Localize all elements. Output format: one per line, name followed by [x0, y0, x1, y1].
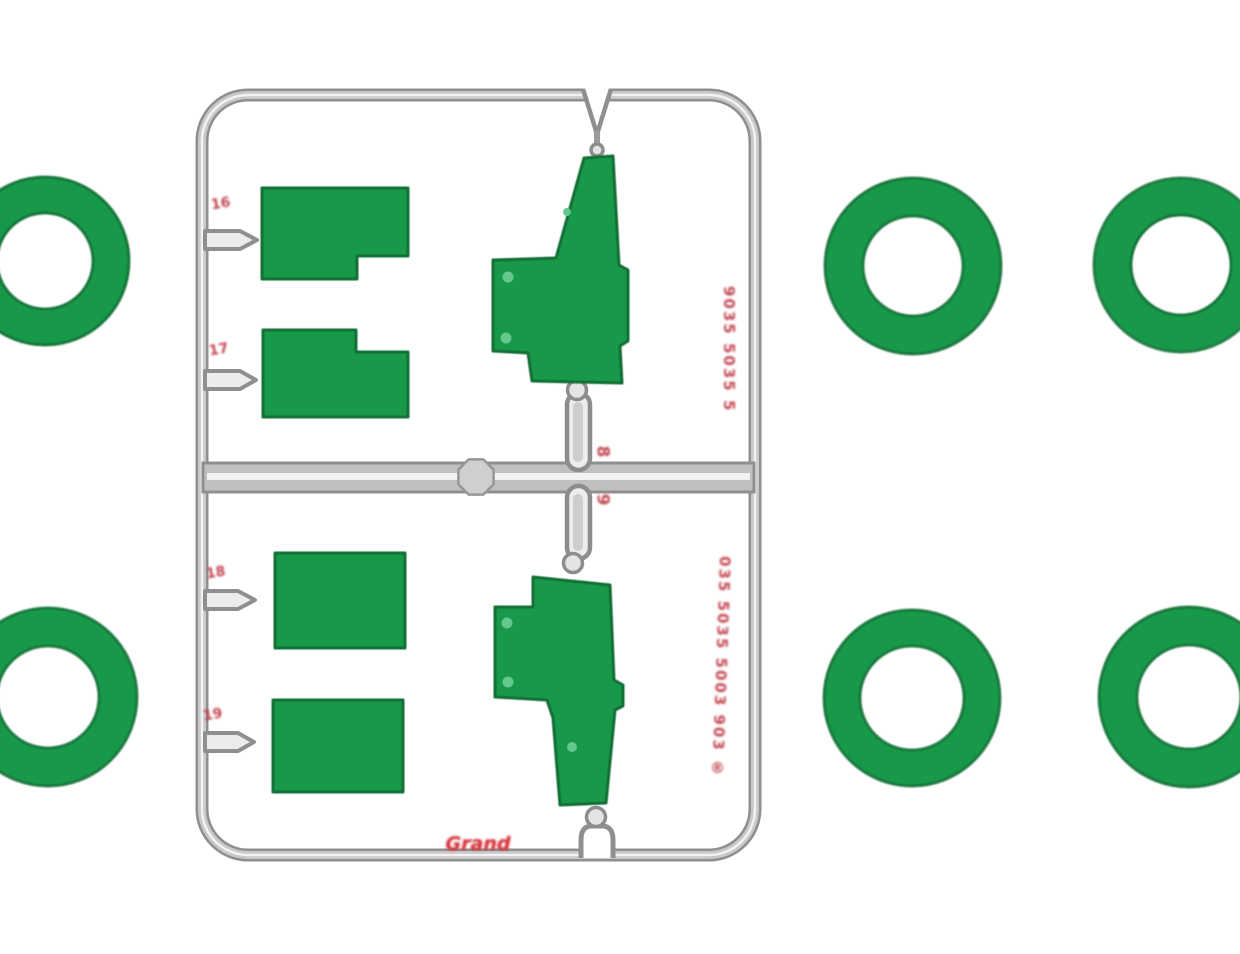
- ring-band: [844, 197, 982, 335]
- sprue-side-text-upper: 9035 5035 5: [721, 286, 736, 464]
- ring-inner-edge: [1137, 645, 1240, 749]
- gate-circle-middle: [564, 554, 583, 573]
- part-panel-plain-2: [273, 700, 403, 792]
- tire-ring-bottom-far-right: [1099, 607, 1240, 787]
- runner-number-label-top: 8: [593, 446, 610, 458]
- gate-circle-bottom: [587, 808, 606, 827]
- ring-inner-edge: [860, 646, 964, 750]
- arrow-gate-4: [205, 733, 254, 751]
- frame-bottom-bump: [581, 826, 613, 858]
- runner-capsule-bottom-core: [573, 494, 583, 551]
- ejector-pin-mark: [502, 618, 513, 629]
- part-panel-plain-1: [275, 553, 405, 648]
- arrow-gate-3: [205, 591, 255, 609]
- arrow-gate-1: [205, 231, 257, 249]
- tire-ring-top-middle-right: [825, 178, 1001, 354]
- ring-inner-edge: [863, 216, 963, 316]
- brand-logo-label: Grand: [430, 835, 526, 854]
- ring-inner-edge: [0, 213, 93, 309]
- tire-ring-top-left: [0, 177, 129, 345]
- ring-band: [842, 628, 982, 768]
- runner-number-label-bottom: 9: [593, 494, 610, 506]
- tire-ring-top-far-right: [1094, 178, 1240, 352]
- part-body-side-upper: [493, 156, 628, 383]
- gate-number-label-4: 19: [202, 707, 223, 724]
- runner-octagon-node: [458, 459, 493, 494]
- ring-inner-edge: [0, 646, 99, 748]
- tire-ring-bottom-left: [0, 608, 137, 786]
- model-kit-sprue-photo: 16 17 18 19 8 9 9035 5035 5 035 5035 500…: [0, 0, 1240, 954]
- part-body-side-lower: [495, 577, 623, 805]
- runner-capsule-top-core: [573, 402, 583, 462]
- gate-number-label-3: 18: [205, 565, 226, 582]
- ring-inner-edge: [1131, 215, 1231, 315]
- tire-ring-bottom-middle-right: [824, 610, 1000, 786]
- ejector-pin-mark: [567, 742, 577, 752]
- ejector-pin-mark: [503, 677, 514, 688]
- gate-number-label-2: 17: [208, 342, 229, 359]
- gate-circle-top: [591, 144, 603, 156]
- arrow-gate-2: [205, 371, 256, 389]
- sprue-illustration: [0, 0, 1240, 954]
- part-panel-notched-top-left: [262, 188, 408, 279]
- ejector-pin-mark: [503, 272, 514, 283]
- ejector-pin-mark: [501, 333, 512, 344]
- part-panel-stepped-left: [263, 330, 408, 417]
- ejector-pin-mark: [563, 208, 571, 216]
- gate-number-label-1: 16: [210, 196, 231, 213]
